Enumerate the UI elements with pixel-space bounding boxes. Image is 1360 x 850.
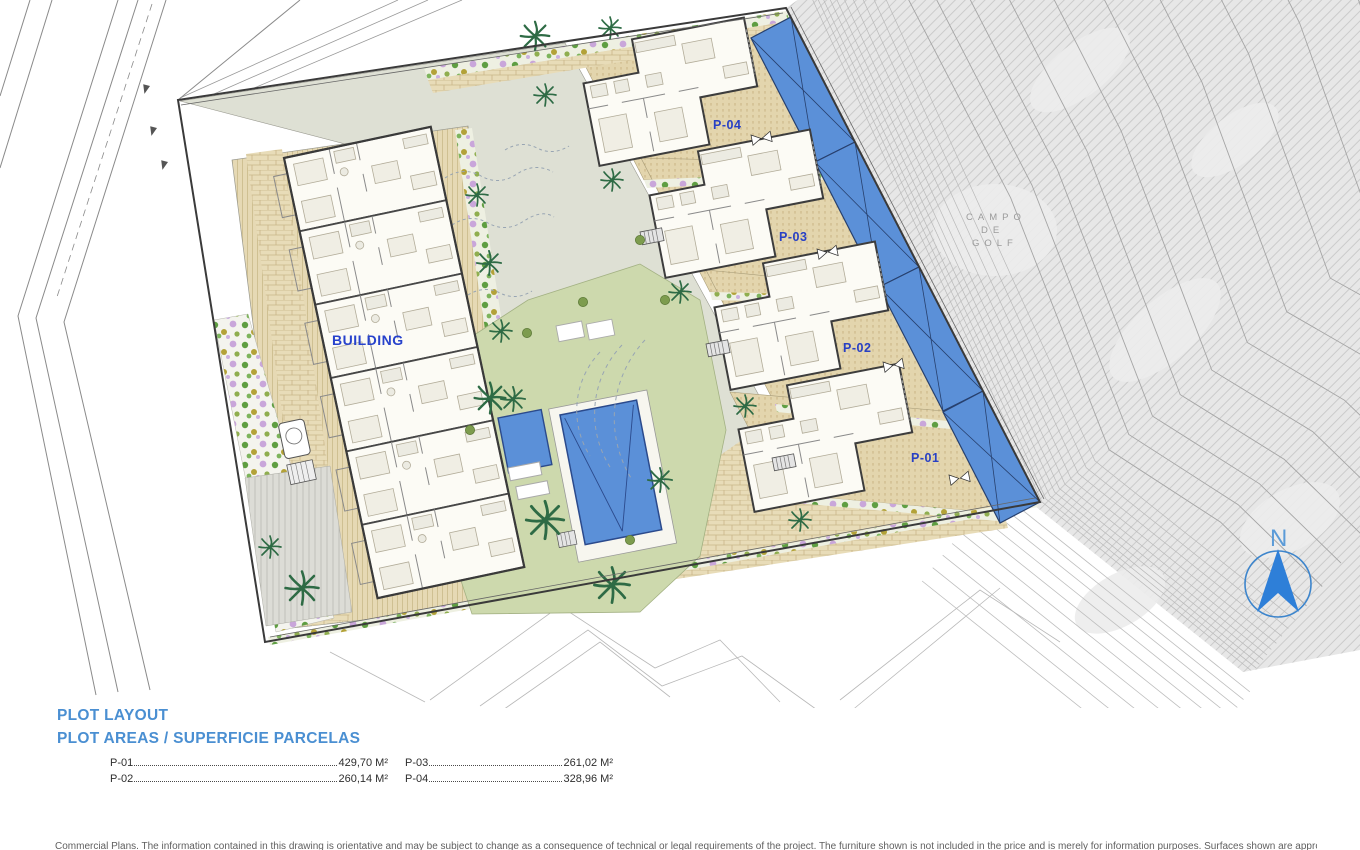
dotted-leader: [134, 765, 337, 766]
dotted-leader: [429, 781, 562, 782]
plot-areas-table: P-01 429,70 M² P-02 260,14 M² P-03 261,0…: [110, 757, 613, 785]
site-plan-page: CAMPO DE GOLF: [0, 0, 1360, 850]
legend-subtitle: PLOT AREAS / SUPERFICIE PARCELAS: [57, 727, 613, 750]
north-label: N: [1270, 525, 1287, 552]
plot-label-p02: P-02: [843, 341, 871, 355]
road-direction-arrows: [141, 84, 168, 170]
plot-code: P-02: [110, 773, 133, 785]
golf-label-line3: GOLF: [972, 238, 1018, 249]
golf-label-line2: DE: [981, 225, 1004, 236]
plot-area-row-p04: P-04 328,96 M²: [405, 773, 613, 785]
plot-label-p03: P-03: [779, 230, 807, 244]
plot-code: P-03: [405, 757, 428, 769]
legend-title: PLOT LAYOUT: [57, 704, 613, 727]
plot-area-value: 261,02 M²: [563, 757, 613, 769]
plot-area-value: 328,96 M²: [563, 773, 613, 785]
plot-label-p04: P-04: [713, 118, 741, 132]
building-label: BUILDING: [332, 332, 404, 348]
plot-area-value: 260,14 M²: [338, 773, 388, 785]
plot-area-value: 429,70 M²: [338, 757, 388, 769]
plot-label-p01: P-01: [911, 451, 939, 465]
plot-legend: PLOT LAYOUT PLOT AREAS / SUPERFICIE PARC…: [57, 704, 613, 785]
dotted-leader: [429, 765, 562, 766]
plot-code: P-04: [405, 773, 428, 785]
plot-code: P-01: [110, 757, 133, 769]
plot-area-row-p01: P-01 429,70 M²: [110, 757, 388, 769]
plot-area-row-p02: P-02 260,14 M²: [110, 773, 388, 785]
golf-label-line1: CAMPO: [966, 212, 1026, 223]
dotted-leader: [134, 781, 337, 782]
plot-area-row-p03: P-03 261,02 M²: [405, 757, 613, 769]
footer-disclaimer: Commercial Plans. The information contai…: [55, 841, 1317, 850]
